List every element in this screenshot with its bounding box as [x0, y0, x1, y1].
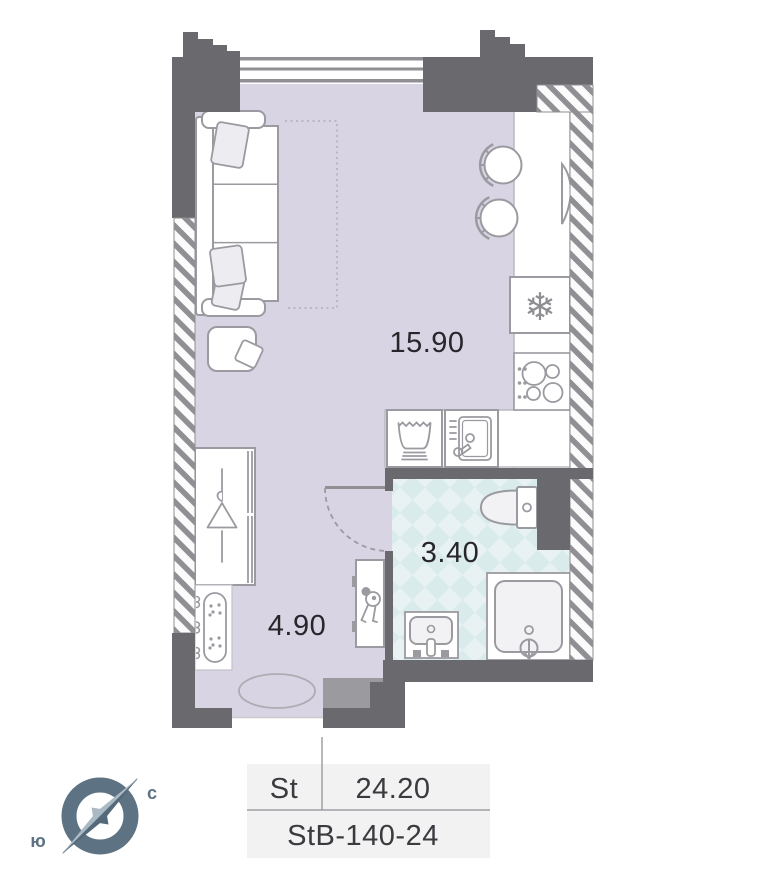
- compass: с ю: [30, 769, 157, 862]
- area-label-hallway: 4.90: [268, 610, 326, 642]
- legend-plan-type: St: [270, 773, 298, 805]
- kitchen-sink: [445, 410, 498, 467]
- wall-pillar-top-left: [172, 32, 240, 112]
- fridge-snowflake-icon: ❄: [524, 285, 556, 329]
- compass-south-label: ю: [30, 831, 45, 851]
- area-label-living: 15.90: [389, 327, 464, 359]
- shoe-bench: [195, 585, 232, 670]
- shower-tray: [487, 573, 570, 660]
- legend: St 24.20 StB-140-24: [247, 737, 490, 858]
- window: [240, 57, 423, 83]
- coffee-table: [208, 327, 264, 371]
- hatched-wall-right: [570, 112, 593, 660]
- washing-machine: [387, 410, 442, 467]
- bar-stool: [480, 144, 522, 186]
- hatched-wall-left: [174, 218, 195, 633]
- door-jamb: [385, 479, 393, 491]
- stove: [514, 353, 570, 410]
- sofa: [196, 111, 278, 316]
- bathroom-wall-left: [385, 551, 393, 660]
- fridge: ❄: [510, 277, 570, 333]
- hatched-wall-corner: [537, 85, 593, 112]
- key-cabinet: [352, 560, 384, 647]
- entry-rug: [239, 674, 315, 708]
- wardrobe: [195, 448, 255, 585]
- utility-shaft: [537, 470, 570, 550]
- wall-bottom-right: [383, 660, 593, 682]
- area-label-bathroom: 3.40: [421, 537, 479, 569]
- legend-unit-code: StB-140-24: [287, 820, 439, 852]
- basin-faucet-icon: [427, 639, 435, 656]
- sofa-pillow: [210, 245, 247, 287]
- floor-plan-page: ❄: [0, 0, 760, 891]
- sofa-pillow: [211, 122, 250, 169]
- washbasin: [405, 612, 458, 658]
- bar-stool: [476, 197, 518, 239]
- floor-plan-svg: ❄: [0, 0, 760, 891]
- legend-total-area: 24.20: [355, 773, 430, 805]
- compass-north-label: с: [147, 783, 157, 803]
